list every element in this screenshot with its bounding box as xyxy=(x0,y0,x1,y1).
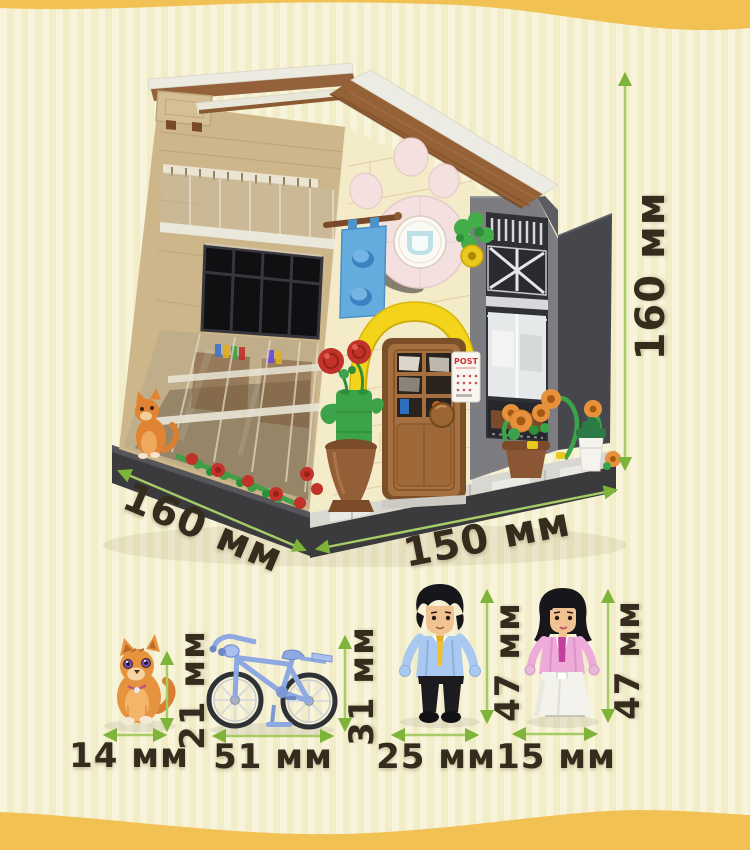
cat-height-label: 21 мм xyxy=(173,630,213,750)
woman-width-label: 15 мм xyxy=(496,737,616,777)
building-height-label: 160 мм xyxy=(628,192,674,361)
man-height-label: 47 мм xyxy=(488,602,528,722)
bicycle-figure xyxy=(209,636,335,727)
building-model: POST xyxy=(103,63,627,567)
top-wave-decoration xyxy=(0,0,750,30)
post-box-label: POST xyxy=(454,357,478,366)
bicycle-width-label: 51 мм xyxy=(213,737,333,777)
product-dimensions-image: POST xyxy=(0,0,750,850)
cat-width-label: 14 мм xyxy=(69,736,189,776)
post-box: POST xyxy=(452,352,480,402)
bottom-wave-decoration xyxy=(0,810,750,850)
bicycle-height-label: 31 мм xyxy=(342,626,382,746)
cat-figure xyxy=(117,634,172,725)
man-width-label: 25 мм xyxy=(376,737,496,777)
woman-height-label: 47 мм xyxy=(608,600,648,720)
woman-minifigure xyxy=(525,588,599,716)
man-minifigure xyxy=(400,584,481,723)
